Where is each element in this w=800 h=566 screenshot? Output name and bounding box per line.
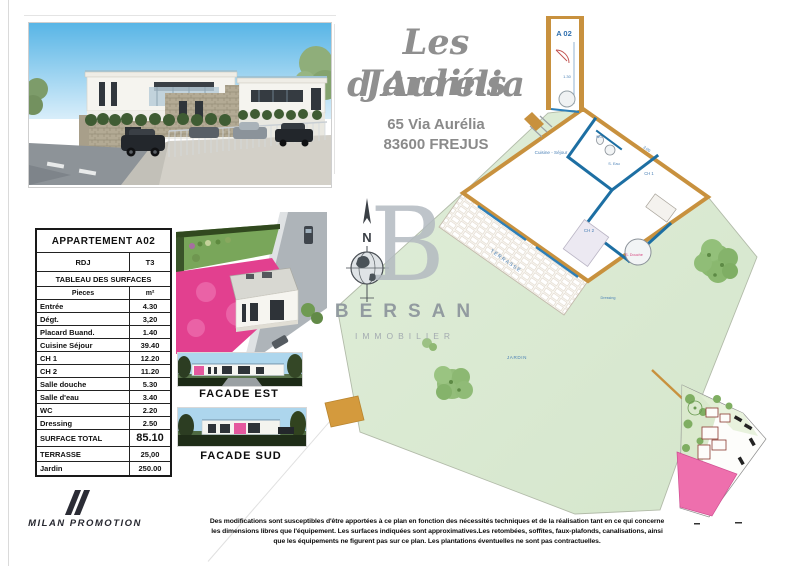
street-render-image bbox=[29, 23, 331, 185]
row-label: Dressing bbox=[37, 419, 129, 428]
site-plan bbox=[677, 385, 766, 525]
level-label: RDJ bbox=[37, 258, 129, 267]
room-label-douche: S. Douche bbox=[625, 253, 643, 257]
table-row: Placard Buand. 1.40 bbox=[37, 325, 170, 338]
row-value: 2.20 bbox=[129, 404, 170, 416]
total-label: SURFACE TOTAL bbox=[37, 434, 129, 443]
room-label-eau: S. Eau bbox=[608, 162, 619, 166]
scan-edge-line bbox=[8, 0, 9, 566]
disclaimer: Des modifications sont susceptibles d'êt… bbox=[184, 517, 690, 547]
row-label: Salle d'eau bbox=[37, 393, 129, 402]
agency-initial: B bbox=[370, 196, 445, 296]
row-value: 2.50 bbox=[129, 417, 170, 429]
table-column-header: Pieces m² bbox=[37, 286, 170, 299]
table-title: APPARTEMENT A02 bbox=[37, 230, 170, 252]
table-row: CH 1 12.20 bbox=[37, 351, 170, 364]
disclaimer-line: Des modifications sont susceptibles d'êt… bbox=[184, 517, 690, 527]
garden-label: Jardin bbox=[37, 464, 129, 473]
row-value: 12.20 bbox=[129, 352, 170, 364]
table-section-header: TABLEAU DES SURFACES bbox=[37, 271, 170, 286]
table-total-row: SURFACE TOTAL 85.10 bbox=[37, 429, 170, 446]
row-label: Salle douche bbox=[37, 380, 129, 389]
tree-icon bbox=[434, 366, 473, 400]
row-value: 39.40 bbox=[129, 339, 170, 351]
disclaimer-line: que les équipements ne figurent pas sur … bbox=[184, 537, 690, 547]
row-label: Placard Buand. bbox=[37, 328, 129, 337]
row-value: 11.20 bbox=[129, 365, 170, 377]
aerial-render bbox=[176, 212, 327, 354]
scan-top-line bbox=[24, 15, 336, 16]
row-value: 4.30 bbox=[129, 300, 170, 312]
row-value: 3,20 bbox=[129, 313, 170, 325]
row-label: CH 1 bbox=[37, 354, 129, 363]
row-label: Entrée bbox=[37, 302, 129, 311]
row-value: 5.30 bbox=[129, 378, 170, 390]
room-label-ch2: CH 2 bbox=[584, 228, 595, 233]
row-label: Cuisine Séjour bbox=[37, 341, 129, 350]
aerial-house bbox=[230, 268, 298, 332]
row-label: CH 2 bbox=[37, 367, 129, 376]
agency-subtitle: IMMOBILIER bbox=[330, 331, 475, 341]
row-value: 1.40 bbox=[129, 326, 170, 338]
terrace-value: 25,00 bbox=[129, 447, 170, 461]
table-row: Dégt. 3,20 bbox=[37, 312, 170, 325]
room-label-sejour: Cuisine - Séjour bbox=[535, 150, 568, 155]
unit-label: A 02 bbox=[556, 29, 572, 38]
table-row: Dressing 2.50 bbox=[37, 416, 170, 429]
facade-sud-image bbox=[178, 408, 306, 446]
room-label-wc: WC bbox=[596, 135, 603, 139]
table-row: WC 2.20 bbox=[37, 403, 170, 416]
room-label-ch1: CH 1 bbox=[644, 171, 654, 176]
total-value: 85.10 bbox=[129, 430, 170, 446]
section-title: TABLEAU DES SURFACES bbox=[56, 275, 152, 284]
table-row: Salle d'eau 3.40 bbox=[37, 390, 170, 403]
table-row: Salle douche 5.30 bbox=[37, 377, 170, 390]
facade-est-image bbox=[178, 353, 302, 386]
surfaces-table: APPARTEMENT A02 RDJ T3 TABLEAU DES SURFA… bbox=[35, 228, 172, 477]
street-render-photo bbox=[28, 22, 332, 188]
table-level-row: RDJ T3 bbox=[37, 252, 170, 271]
col-area: m² bbox=[129, 287, 170, 299]
developer-name: MILAN PROMOTION bbox=[20, 518, 150, 528]
garden-value: 250.00 bbox=[129, 462, 170, 475]
row-label: Dégt. bbox=[37, 315, 129, 324]
row-label: WC bbox=[37, 406, 129, 415]
disclaimer-line: les dimensions libres que l'équipement. … bbox=[184, 527, 690, 537]
garden-plan-label: JARDIN bbox=[507, 355, 527, 360]
room-label-dressing: Dressing bbox=[601, 296, 616, 300]
apartment-id: APPARTEMENT A02 bbox=[52, 236, 156, 247]
facade-est-label: FACADE EST bbox=[177, 388, 301, 400]
table-garden-row: Jardin 250.00 bbox=[37, 461, 170, 475]
terrace-label: TERRASSE bbox=[37, 450, 129, 459]
aerial-render-image bbox=[176, 212, 327, 354]
dim-entry: 1.30 bbox=[563, 74, 572, 79]
table-terrace-row: TERRASSE 25,00 bbox=[37, 446, 170, 461]
facade-sud-render bbox=[177, 407, 307, 447]
table-row: CH 2 11.20 bbox=[37, 364, 170, 377]
table-row: Cuisine Séjour 39.40 bbox=[37, 338, 170, 351]
facade-est-render bbox=[177, 352, 303, 387]
row-value: 3.40 bbox=[129, 391, 170, 403]
facade-sud-label: FACADE SUD bbox=[177, 450, 305, 462]
col-room: Pieces bbox=[37, 290, 129, 297]
agency-name: BERSAN bbox=[325, 301, 483, 323]
table-row: Entrée 4.30 bbox=[37, 299, 170, 312]
milan-slash-icon bbox=[62, 490, 92, 516]
type-label: T3 bbox=[129, 253, 170, 271]
